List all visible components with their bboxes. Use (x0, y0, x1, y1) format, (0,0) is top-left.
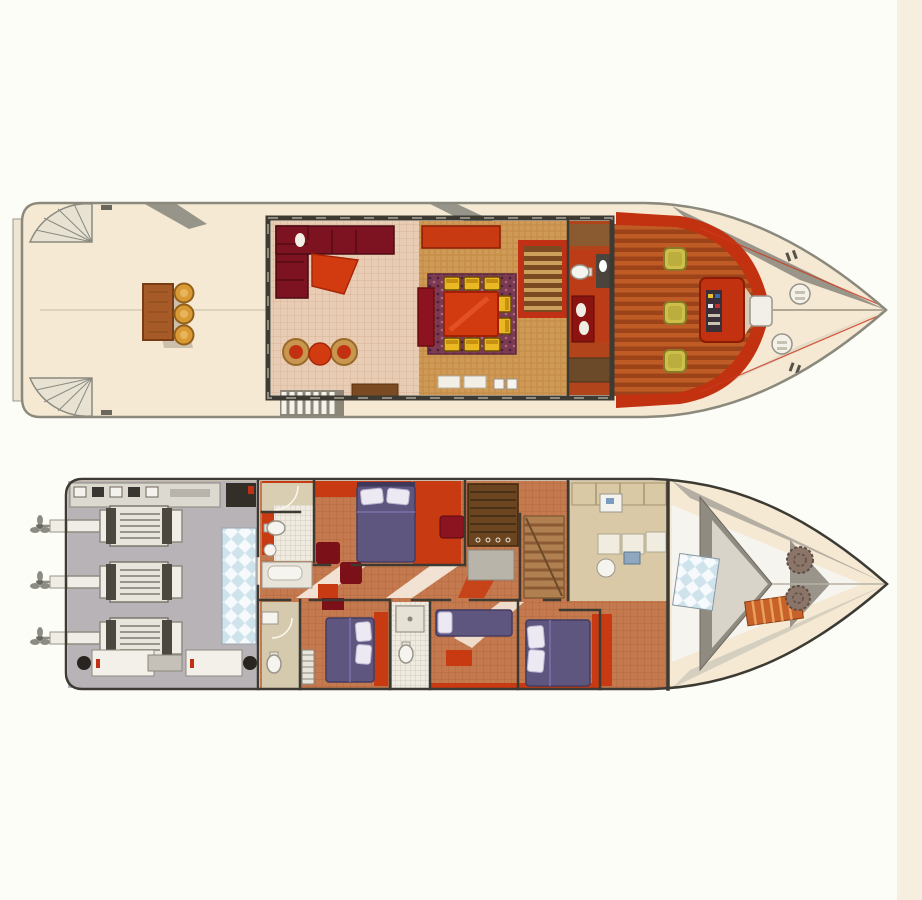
stern-cleat-starboard (101, 410, 112, 415)
shower-room (392, 602, 430, 689)
salon-stairs (280, 390, 344, 416)
anchor-chain-coil-2 (786, 586, 810, 610)
helm-chair-1 (664, 248, 686, 270)
aft-deck-stool-2 (175, 305, 194, 324)
deck-plan-drawing (0, 0, 922, 900)
wicker-armchair-1 (283, 339, 309, 365)
counter-3 (646, 532, 666, 552)
master-armchair-1 (316, 542, 340, 564)
helm-chair-3 (664, 350, 686, 372)
page-edge-band (897, 0, 922, 900)
bathroom-2 (262, 602, 300, 689)
master-armchair-3 (440, 516, 464, 538)
dining-chair-6 (484, 338, 500, 351)
swim-platform (13, 219, 22, 401)
dining-chair-4 (444, 338, 460, 351)
wicker-armchair-2 (331, 339, 357, 365)
propeller-3 (30, 627, 50, 645)
master-ottoman (318, 584, 338, 600)
utility-locker (468, 550, 514, 580)
sofa-throw (295, 233, 305, 247)
galley-appliance-2 (507, 379, 517, 389)
counter-2 (622, 534, 644, 554)
dining-chair-1 (444, 277, 460, 290)
lower-staircase (524, 516, 564, 598)
dining-chair-2 (464, 277, 480, 290)
forepeak-crate (673, 553, 720, 610)
checkered-tank (222, 528, 256, 644)
counter-1 (598, 534, 620, 554)
dining-side-bench (418, 288, 434, 346)
main-deck-plan (13, 203, 886, 417)
propeller-shafts (30, 515, 68, 645)
head-closet (568, 224, 612, 246)
aft-deck-stool-1 (175, 284, 194, 303)
sink-1 (264, 544, 276, 556)
galley-cabinet-1 (438, 376, 460, 388)
sink-2 (262, 612, 278, 624)
propeller-2 (30, 571, 50, 589)
dining-chair-7 (498, 296, 511, 312)
engine-room (66, 481, 258, 689)
generator-1 (92, 650, 154, 676)
wardrobe (468, 484, 518, 546)
salon-round-table (309, 343, 331, 365)
galley-sink (597, 559, 615, 577)
anchor-chain-coil-1 (787, 547, 813, 573)
yacht-deck-plan-page (0, 0, 922, 900)
forward-cabin (526, 620, 590, 686)
helm-chair-2 (664, 302, 686, 324)
cabin3-seat (446, 650, 472, 666)
floor-accent-cabin4 (592, 614, 612, 686)
galley-appliance-1 (494, 379, 504, 389)
head-towel-niche (572, 296, 594, 342)
dining-chair-8 (498, 318, 511, 334)
generator-2 (186, 650, 242, 676)
anchor-windlass (750, 296, 772, 326)
propeller-1 (30, 515, 50, 533)
aft-deck-stool-3 (175, 326, 194, 345)
shaft-bracket-1 (50, 520, 66, 532)
galley-cabinet-2 (464, 376, 486, 388)
stern-cleat-port (101, 205, 112, 210)
head-cabinet (568, 358, 612, 382)
stern-gland-starboard (243, 656, 257, 670)
floor-accent-cabin2 (374, 612, 388, 686)
pump-unit (148, 655, 182, 671)
stern-gland-port (77, 656, 91, 670)
cooktop (624, 552, 640, 564)
companionway-stairs (518, 240, 568, 318)
dining-chair-3 (484, 277, 500, 290)
dining-chair-5 (464, 338, 480, 351)
dining-top-settee (422, 226, 500, 248)
shaft-bracket-2 (50, 576, 66, 588)
shaft-bracket-3 (50, 632, 66, 644)
head-sink (599, 260, 607, 272)
lower-deck-plan (30, 479, 887, 689)
